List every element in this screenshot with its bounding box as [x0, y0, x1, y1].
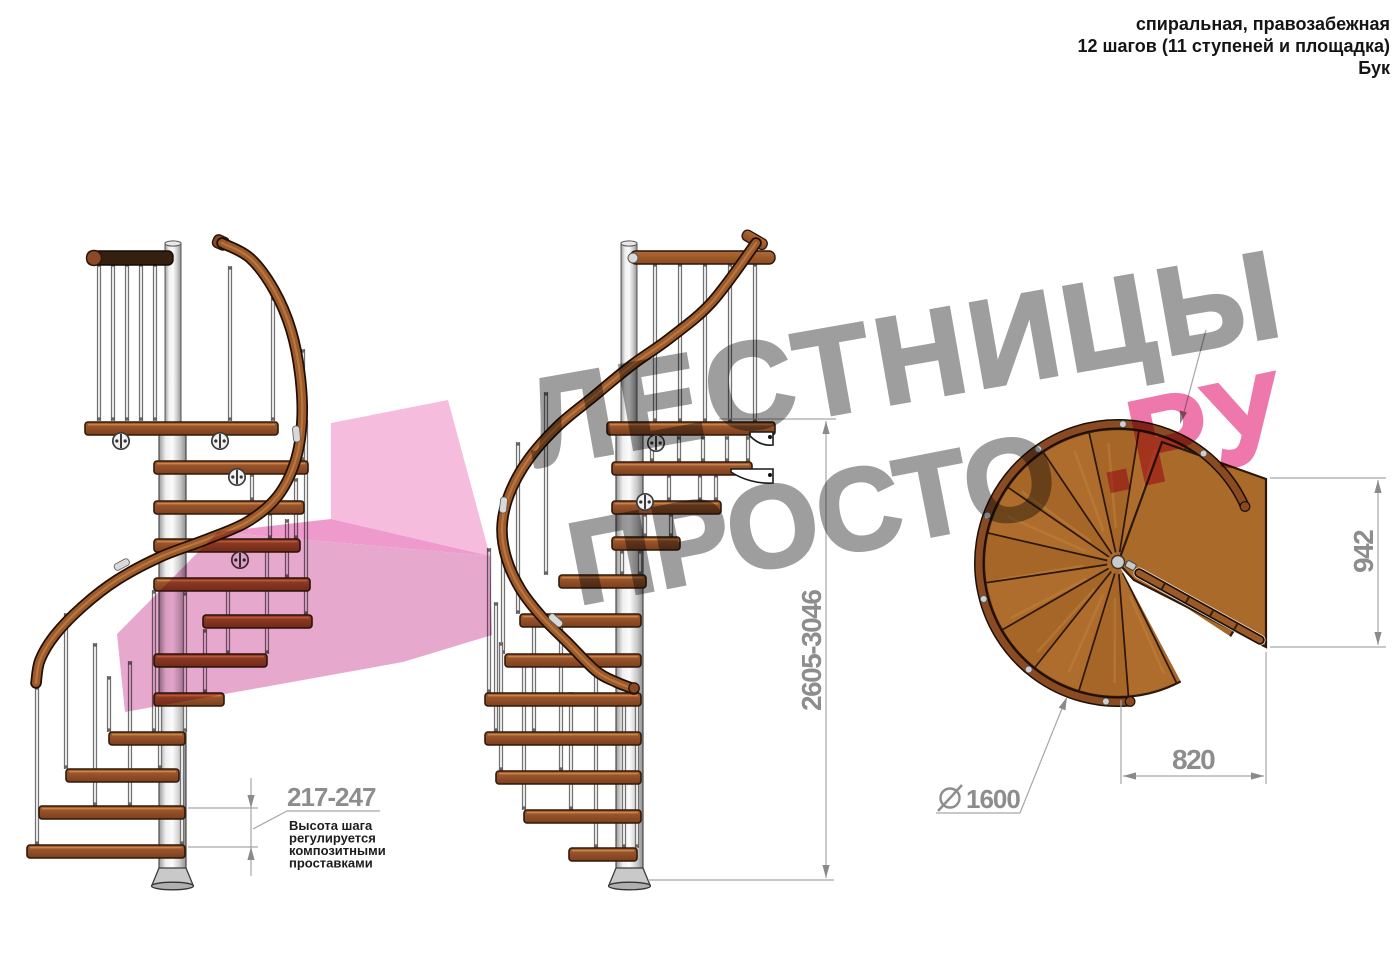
svg-text:820: 820 [1172, 744, 1215, 775]
svg-text:проставками: проставками [289, 856, 373, 871]
svg-text:1600: 1600 [966, 784, 1020, 814]
svg-text:942: 942 [1348, 530, 1379, 573]
svg-text:217-247: 217-247 [287, 782, 376, 812]
svg-text:Бук: Бук [1358, 58, 1391, 78]
svg-text:2605-3046: 2605-3046 [796, 590, 827, 711]
svg-text:спиральная, правозабежная: спиральная, правозабежная [1136, 14, 1390, 34]
svg-text:12 шагов (11 ступеней и площад: 12 шагов (11 ступеней и площадка) [1078, 36, 1391, 56]
